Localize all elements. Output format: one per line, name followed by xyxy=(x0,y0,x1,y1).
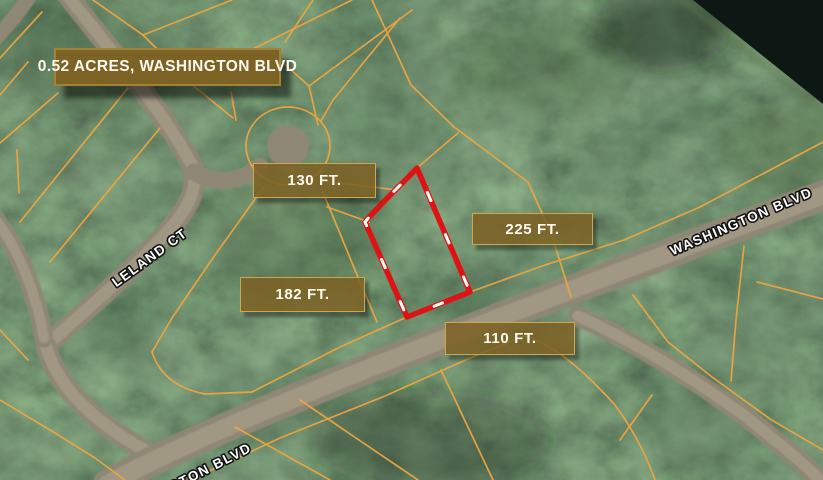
measurement-bottom-label: 110 FT. xyxy=(483,330,536,347)
cul-de-sac-bulb xyxy=(267,125,309,167)
title-badge: 0.52 ACRES, WASHINGTON BLVD xyxy=(54,48,281,86)
title-badge-label: 0.52 ACRES, WASHINGTON BLVD xyxy=(38,58,297,76)
measurement-badge-right: 225 FT. xyxy=(472,213,593,245)
measurement-badge-bottom: 110 FT. xyxy=(445,322,575,355)
measurement-right-label: 225 FT. xyxy=(505,221,559,238)
measurement-left-label: 182 FT. xyxy=(275,286,329,303)
measurement-top-label: 130 FT. xyxy=(287,172,341,189)
map-container: LELAND CT WASHINGTON BLVD WASHINGTON BLV… xyxy=(0,0,823,480)
measurement-badge-left: 182 FT. xyxy=(240,277,365,312)
measurement-badge-top: 130 FT. xyxy=(253,163,376,198)
